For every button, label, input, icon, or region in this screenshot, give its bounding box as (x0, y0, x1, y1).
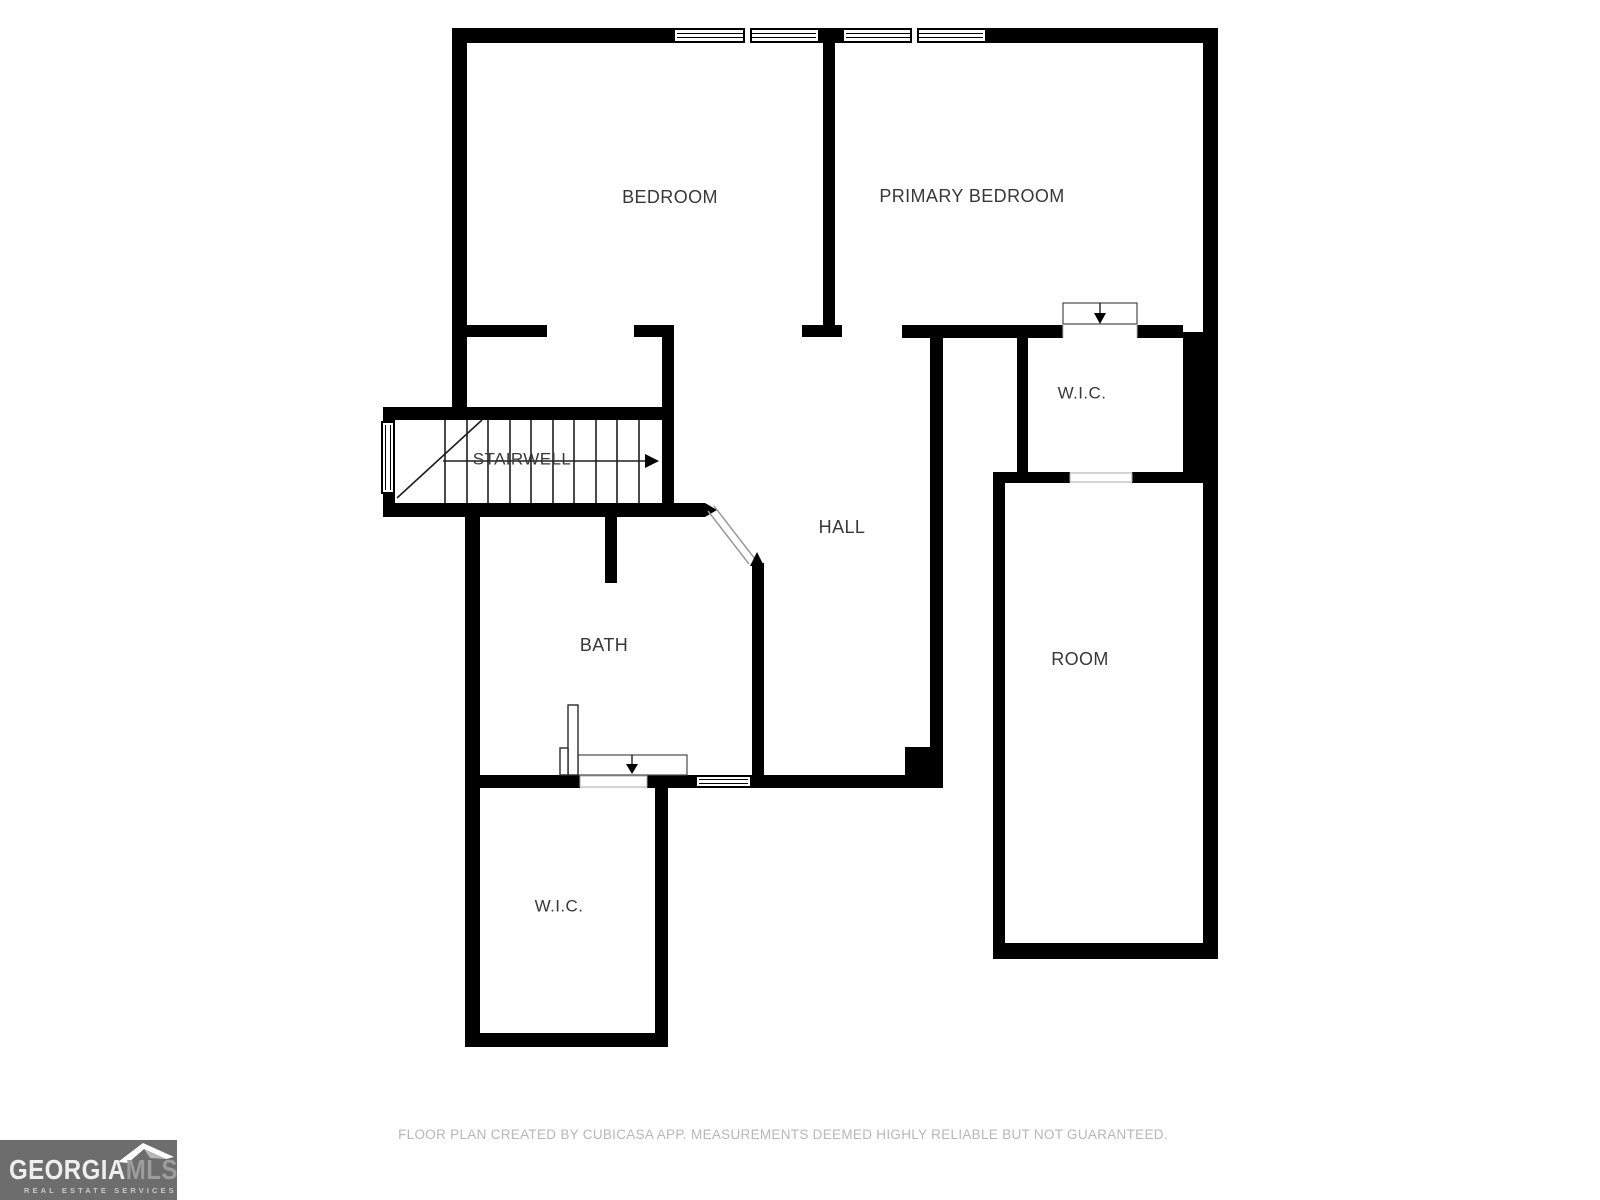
floor-plan-page: BEDROOM PRIMARY BEDROOM W.I.C. STAIRWELL… (0, 0, 1600, 1200)
bath-door-swing (705, 503, 764, 566)
logo-mls-text: MLS (126, 1154, 177, 1185)
room-label-room: ROOM (1051, 650, 1109, 668)
lower-wic-door-indicator (578, 755, 687, 787)
room-label-hall: HALL (819, 518, 866, 536)
stair-winder-diagonal (397, 420, 482, 498)
room-label-wic-lower: W.I.C. (535, 898, 584, 915)
upper-wic-door-indicator (1063, 303, 1137, 337)
room-label-bedroom: BEDROOM (622, 188, 718, 206)
bath-fixture (560, 705, 578, 775)
logo-brand: GEORGIAMLS (9, 1154, 177, 1186)
floorplan-line-details (0, 0, 1600, 1200)
disclaimer-text: FLOOR PLAN CREATED BY CUBICASA APP. MEAS… (0, 1127, 1566, 1142)
room-label-primary-bedroom: PRIMARY BEDROOM (879, 187, 1064, 205)
room-label-bath: BATH (580, 636, 628, 654)
logo-tagline: REAL ESTATE SERVICES (24, 1186, 177, 1195)
georgia-mls-logo: GEORGIAMLS REAL ESTATE SERVICES (0, 1140, 177, 1200)
room-label-stairwell: STAIRWELL (473, 451, 571, 468)
room-label-wic-upper: W.I.C. (1058, 385, 1107, 402)
wic-room-doorway (1070, 473, 1132, 482)
logo-georgia-text: GEORGIA (9, 1154, 126, 1185)
